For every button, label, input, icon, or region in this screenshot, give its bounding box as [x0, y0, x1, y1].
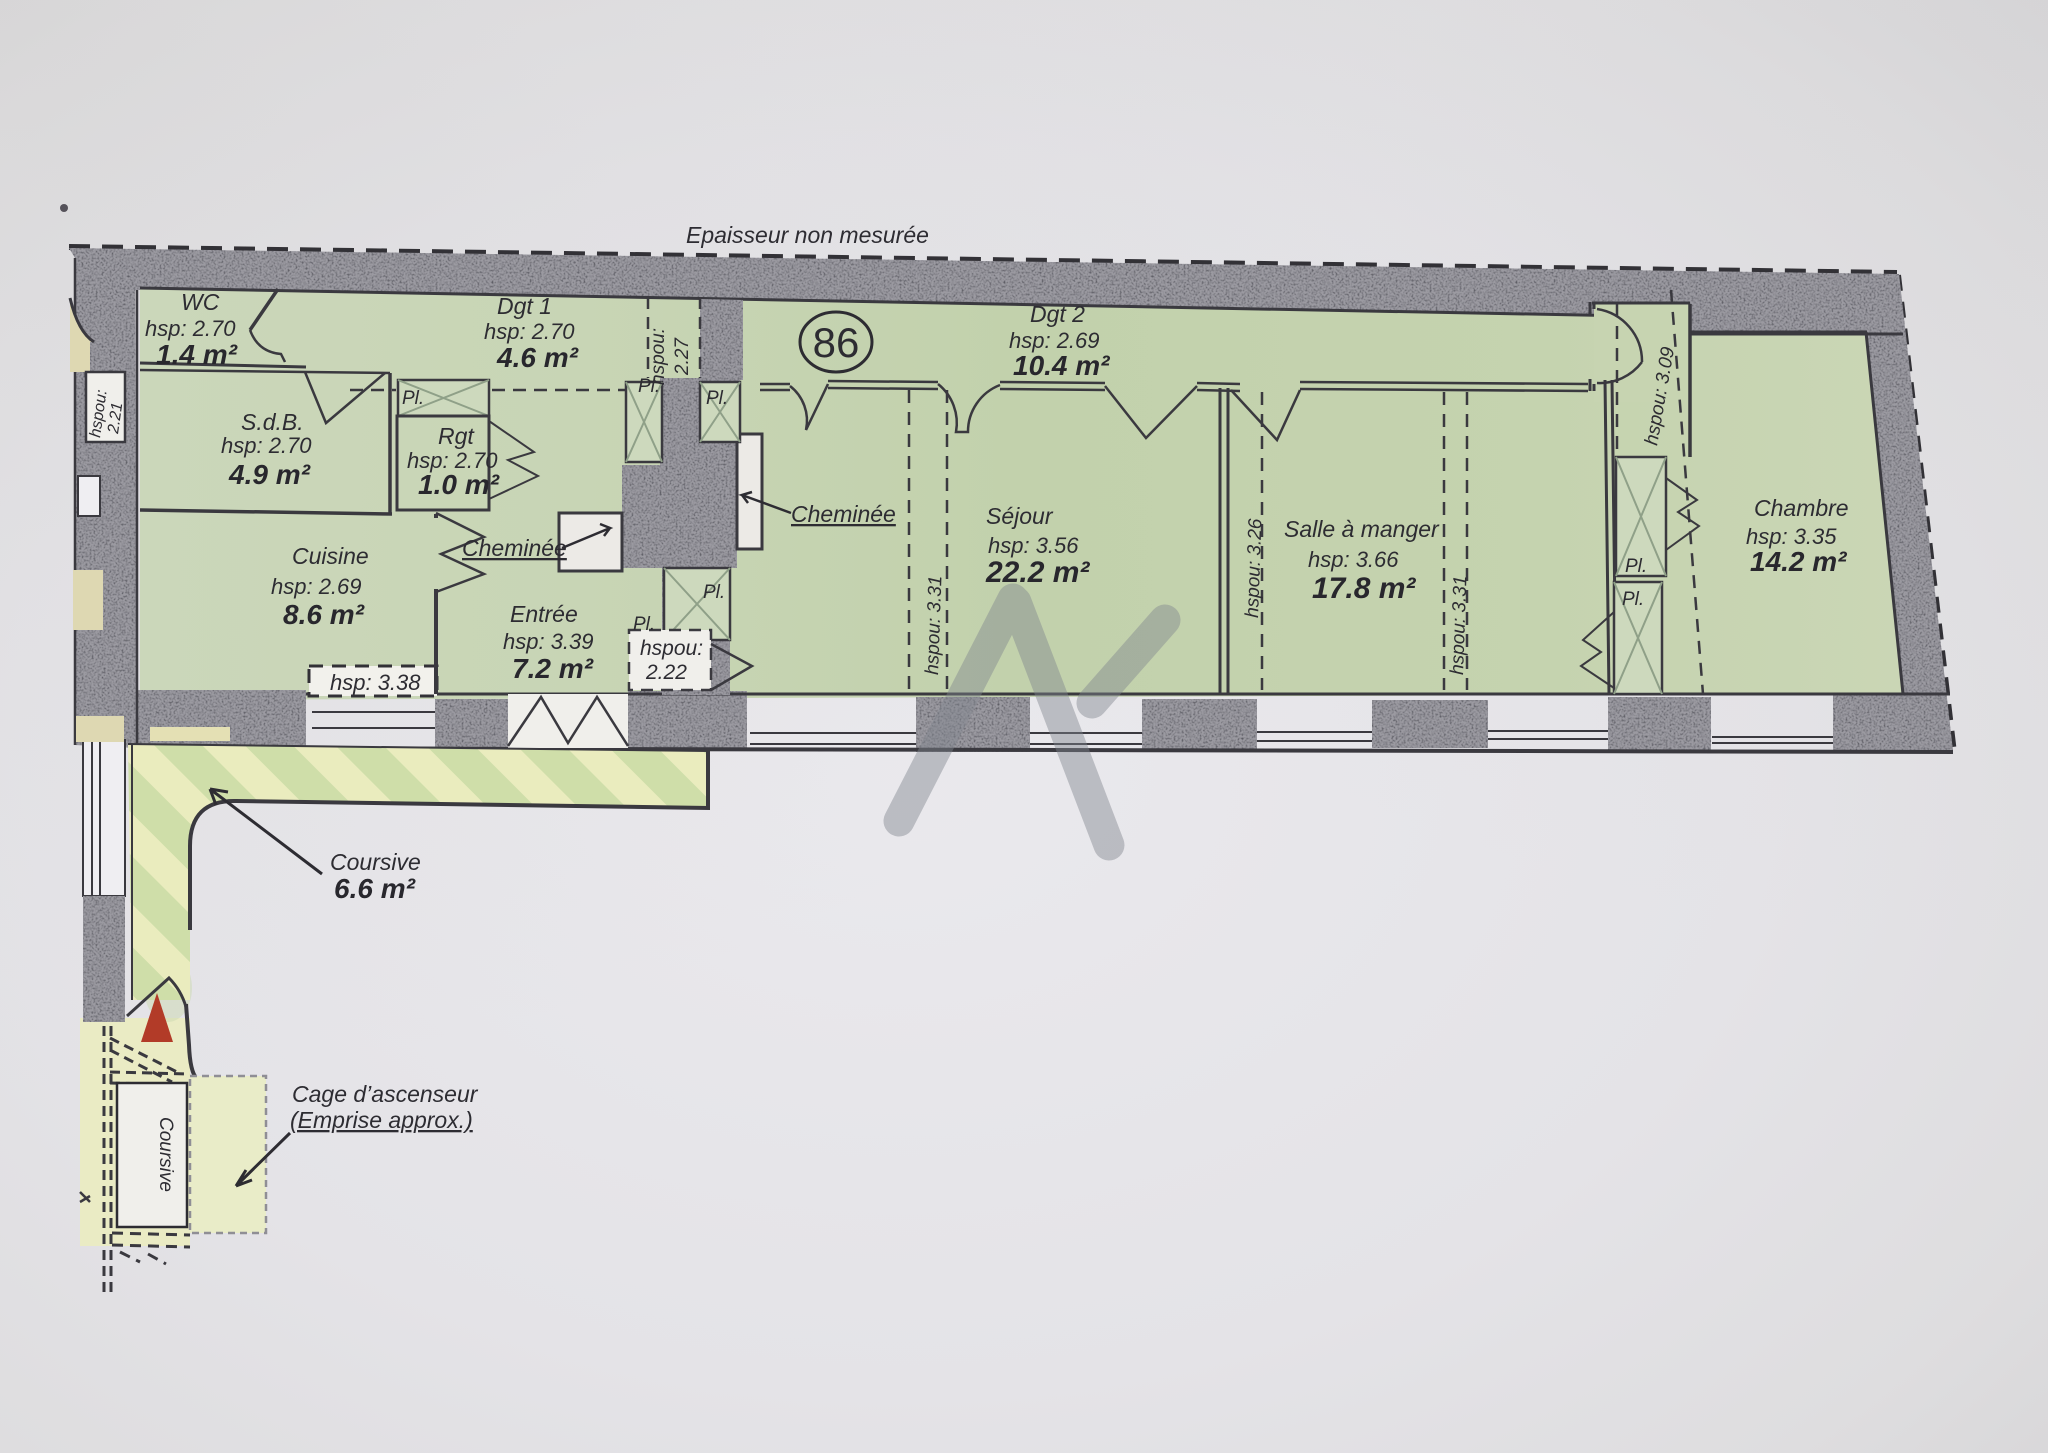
- svg-text:Cheminée: Cheminée: [462, 535, 567, 561]
- svg-text:hsp: 2.70: hsp: 2.70: [145, 316, 236, 341]
- svg-text:22.2 m²: 22.2 m²: [985, 556, 1090, 589]
- svg-text:Pl.: Pl.: [706, 388, 728, 409]
- svg-text:2.27: 2.27: [672, 337, 693, 376]
- svg-text:hsp: 2.69: hsp: 2.69: [271, 574, 362, 599]
- svg-text:S.d.B.: S.d.B.: [241, 409, 304, 435]
- svg-text:1.0 m²: 1.0 m²: [418, 469, 500, 500]
- svg-text:Entrée: Entrée: [510, 601, 578, 627]
- svg-text:Pl.: Pl.: [1625, 556, 1647, 577]
- svg-text:1.4 m²: 1.4 m²: [156, 339, 238, 370]
- svg-text:17.8 m²: 17.8 m²: [1312, 572, 1416, 605]
- svg-text:Séjour: Séjour: [986, 503, 1054, 529]
- svg-text:4.9 m²: 4.9 m²: [228, 459, 311, 490]
- svg-text:Rgt: Rgt: [438, 423, 475, 449]
- svg-text:Pl.: Pl.: [402, 388, 424, 409]
- svg-text:2.22: 2.22: [645, 661, 687, 684]
- svg-text:hsp: 2.70: hsp: 2.70: [484, 319, 575, 344]
- svg-text:Coursive: Coursive: [155, 1117, 176, 1192]
- svg-text:Chambre: Chambre: [1754, 495, 1849, 521]
- svg-text:Cuisine: Cuisine: [292, 543, 369, 569]
- svg-text:10.4 m²: 10.4 m²: [1013, 350, 1110, 381]
- svg-text:hsp: 3.38: hsp: 3.38: [330, 670, 421, 695]
- svg-text:Cheminée: Cheminée: [791, 501, 896, 527]
- svg-text:hsp: 3.66: hsp: 3.66: [1308, 547, 1399, 572]
- svg-text:7.2 m²: 7.2 m²: [512, 653, 594, 684]
- svg-text:8.6 m²: 8.6 m²: [283, 599, 365, 630]
- svg-text:Pl.: Pl.: [703, 582, 725, 603]
- svg-text:Dgt 1: Dgt 1: [497, 293, 552, 319]
- svg-text:hsp: 3.56: hsp: 3.56: [988, 533, 1079, 558]
- svg-text:14.2 m²: 14.2 m²: [1750, 546, 1847, 577]
- svg-text:Salle à manger: Salle à manger: [1284, 516, 1440, 542]
- svg-text:hsp: 3.39: hsp: 3.39: [503, 629, 594, 654]
- svg-text:WC: WC: [181, 289, 220, 315]
- svg-text:Pl.: Pl.: [1622, 589, 1644, 610]
- svg-text:hspou: 3.31: hspou: 3.31: [1447, 575, 1471, 675]
- svg-text:hspou: 3.26: hspou: 3.26: [1242, 518, 1266, 618]
- svg-text:Pl.: Pl.: [638, 376, 660, 397]
- svg-text:Epaisseur non mesurée: Epaisseur non mesurée: [686, 222, 929, 248]
- svg-text:Pl.: Pl.: [633, 614, 655, 635]
- svg-text:Coursive: Coursive: [330, 849, 421, 875]
- svg-text:Cage d’ascenseur: Cage d’ascenseur: [292, 1081, 479, 1107]
- svg-text:hspou: 3.31: hspou: 3.31: [922, 575, 946, 675]
- svg-text:6.6 m²: 6.6 m²: [334, 873, 416, 904]
- svg-text:Dgt 2: Dgt 2: [1030, 301, 1085, 327]
- svg-text:hspou:: hspou:: [640, 637, 703, 660]
- svg-text:hsp: 2.70: hsp: 2.70: [221, 433, 312, 458]
- svg-text:86: 86: [813, 319, 860, 366]
- svg-text:4.6 m²: 4.6 m²: [496, 342, 579, 373]
- svg-text:(Emprise approx.): (Emprise approx.): [290, 1107, 473, 1133]
